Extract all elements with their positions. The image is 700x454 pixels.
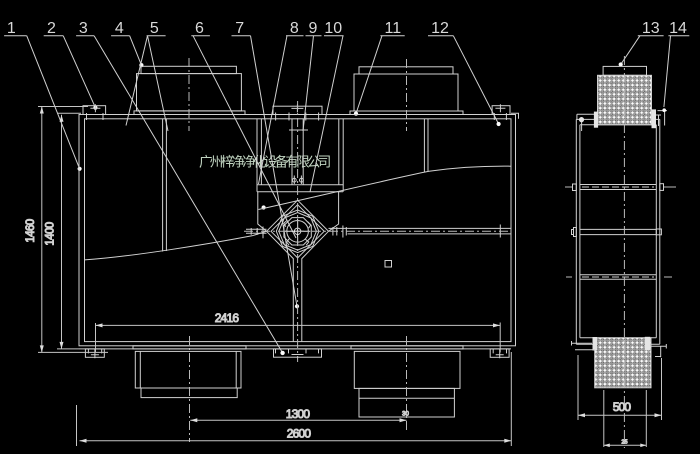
svg-text:7: 7: [235, 20, 244, 37]
svg-text:1400: 1400: [45, 222, 57, 245]
svg-text:2416: 2416: [215, 311, 240, 325]
svg-text:9: 9: [308, 20, 317, 37]
svg-text:1460: 1460: [25, 219, 37, 242]
svg-text:2600: 2600: [287, 427, 312, 441]
svg-text:5: 5: [150, 20, 159, 37]
svg-text:13: 13: [642, 20, 660, 37]
svg-text:500: 500: [613, 400, 632, 414]
svg-text:30: 30: [402, 412, 409, 418]
svg-text:6: 6: [195, 20, 204, 37]
svg-text:11: 11: [384, 20, 401, 37]
svg-text:1: 1: [7, 20, 16, 37]
svg-text:25: 25: [621, 440, 627, 446]
svg-text:4: 4: [115, 20, 124, 37]
svg-text:12: 12: [431, 20, 449, 37]
svg-text:8: 8: [290, 20, 299, 37]
svg-text:2: 2: [47, 20, 56, 37]
svg-text:10: 10: [324, 20, 342, 37]
svg-text:1300: 1300: [286, 407, 311, 421]
svg-text:3: 3: [79, 20, 88, 37]
svg-text:14: 14: [669, 20, 687, 37]
